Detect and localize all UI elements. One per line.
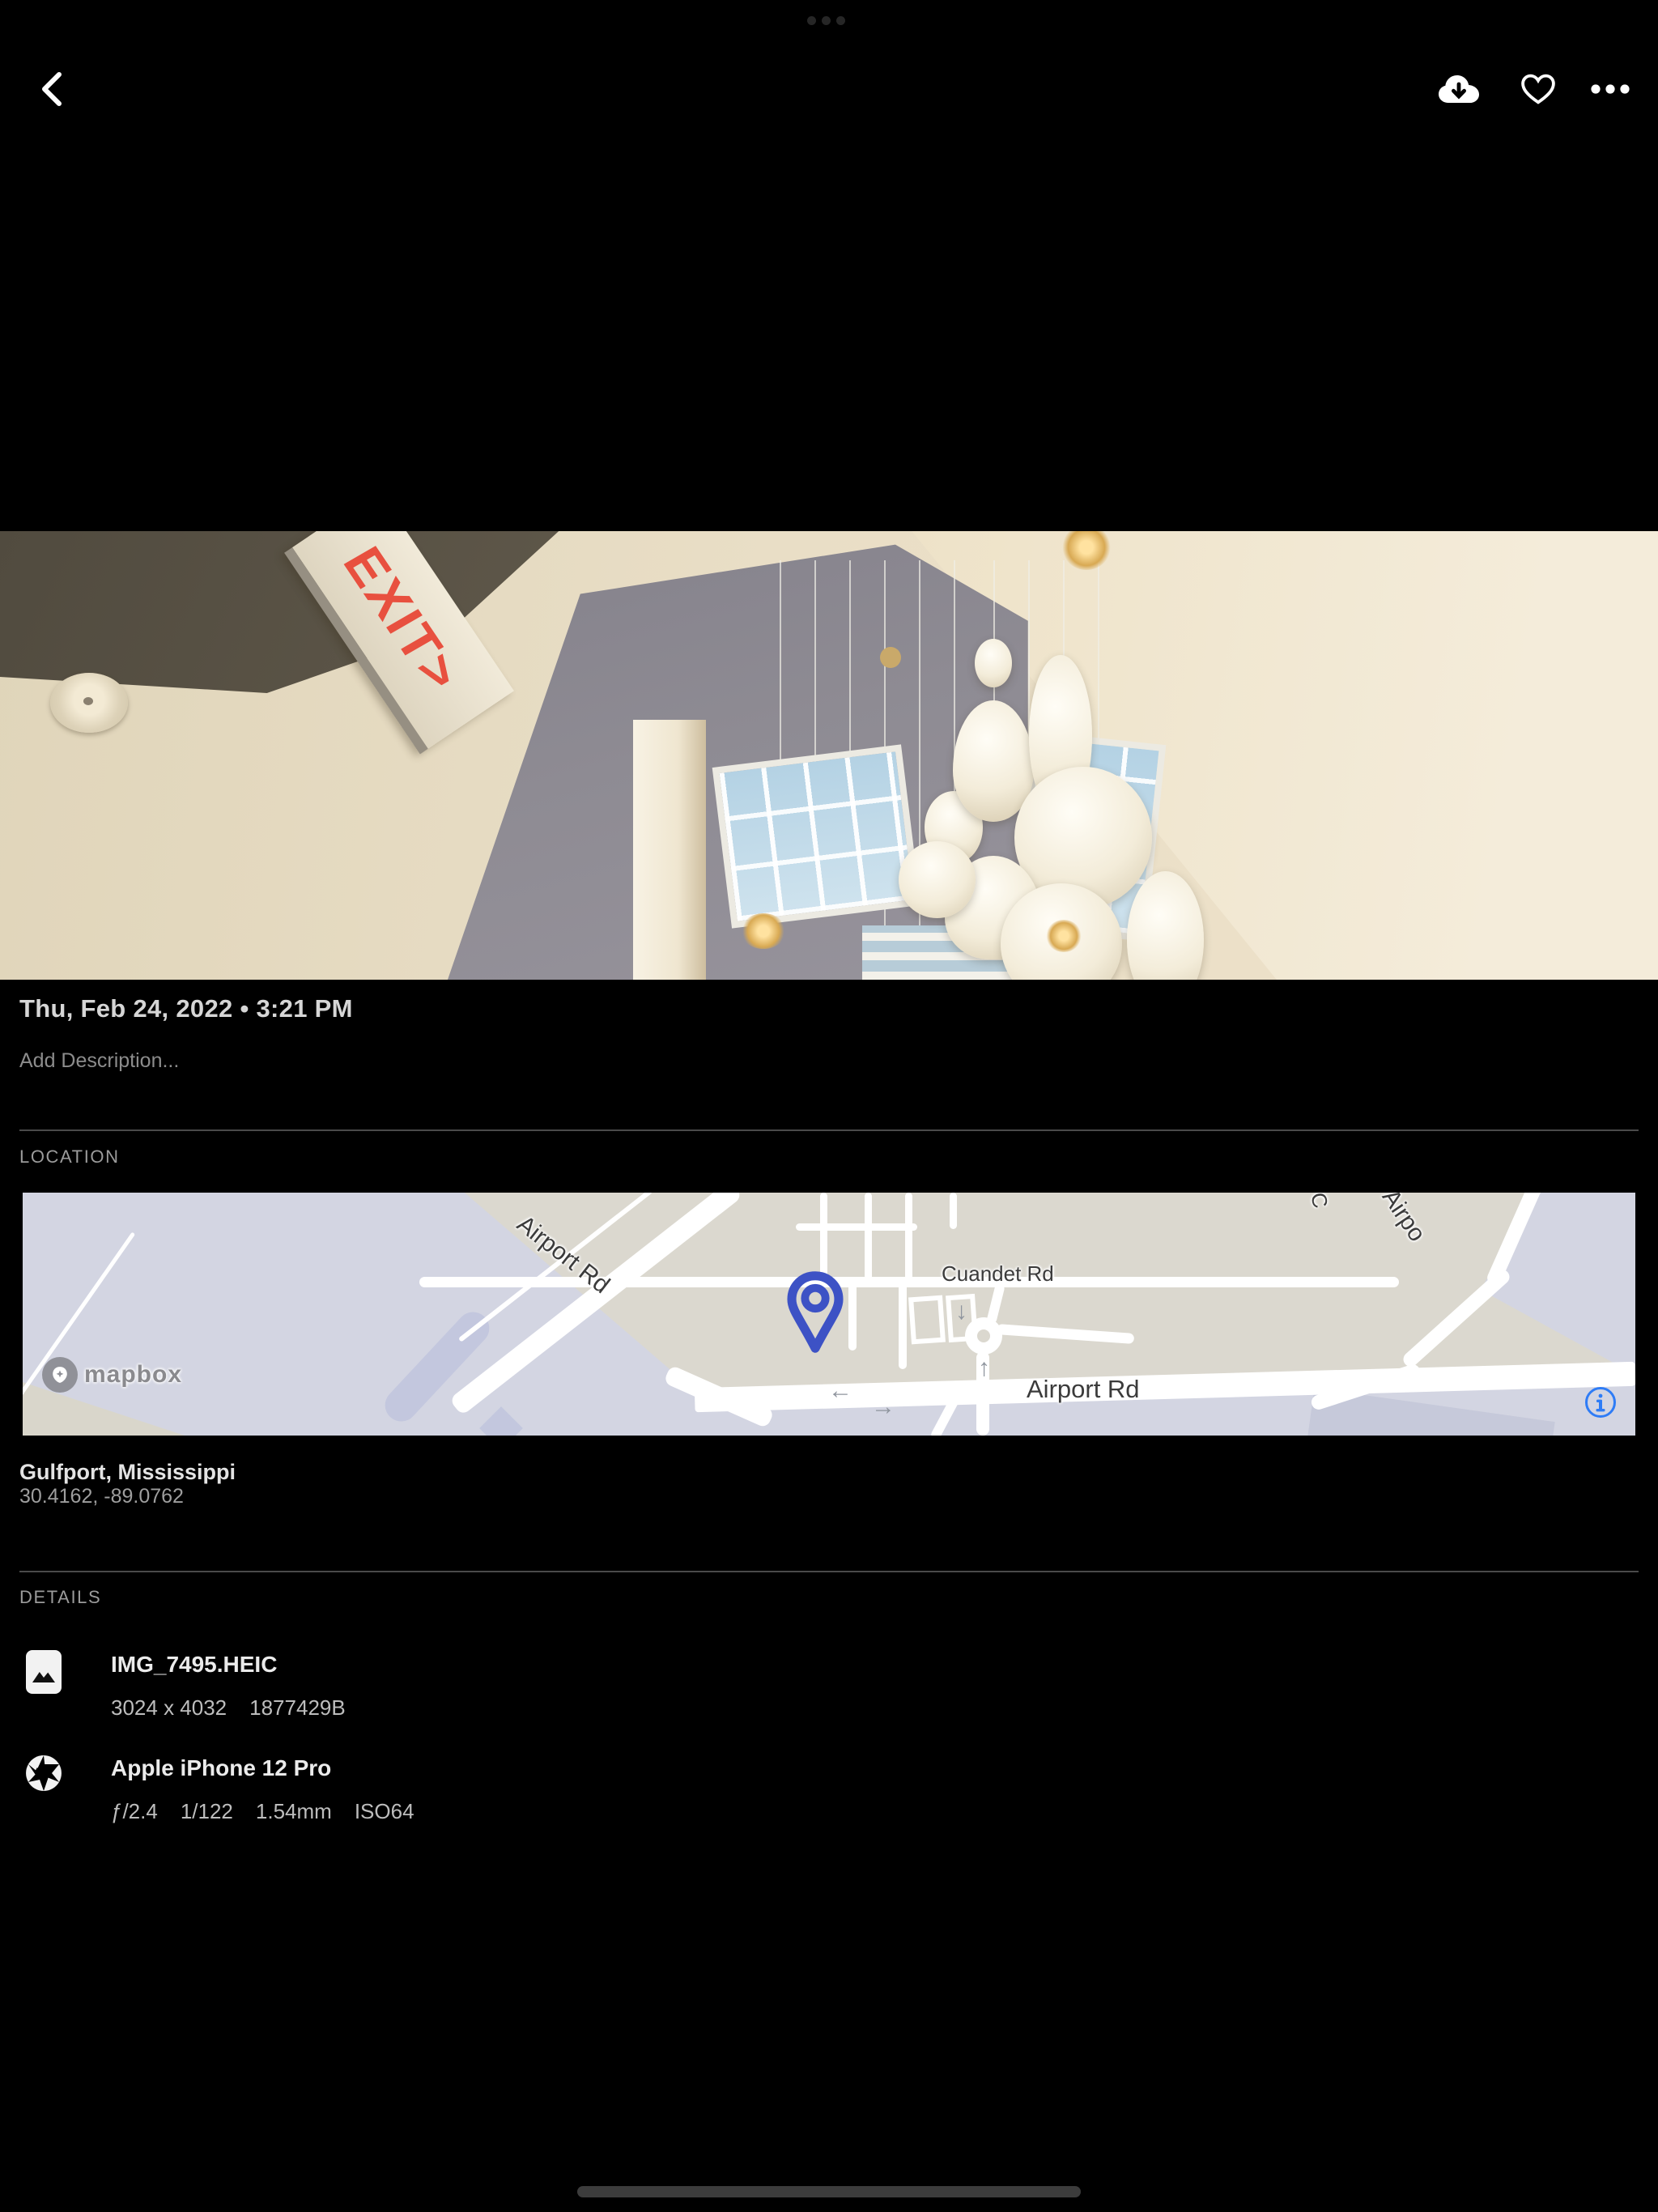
details-section-label: DETAILS (19, 1587, 101, 1608)
camera-meta: ƒ/2.41/1221.54mmISO64 (111, 1799, 437, 1824)
camera-name: Apple iPhone 12 Pro (111, 1755, 331, 1781)
exif-focal-length: 1.54mm (256, 1799, 332, 1823)
file-dimensions: 3024 x 4032 (111, 1695, 227, 1720)
home-indicator[interactable] (577, 2186, 1081, 2197)
smoke-detector (50, 673, 128, 733)
favorite-button[interactable] (1516, 66, 1561, 112)
image-file-icon (24, 1648, 63, 1699)
location-coordinates: 30.4162, -89.0762 (19, 1485, 184, 1508)
location-section-label: LOCATION (19, 1146, 120, 1168)
chevron-left-icon (38, 71, 66, 107)
photo-date: Thu, Feb 24, 2022 • 3:21 PM (19, 994, 353, 1023)
download-button[interactable] (1435, 66, 1483, 112)
ceiling-light (741, 913, 786, 949)
pendant-lamp (975, 639, 1012, 687)
road-minor (899, 1282, 907, 1369)
file-meta: 3024 x 40321877429B (111, 1695, 368, 1721)
photo-window-grid (712, 744, 921, 928)
road-curve-ne (1401, 1266, 1512, 1369)
exif-iso: ISO64 (355, 1799, 414, 1823)
dot (822, 16, 831, 25)
ellipsis-icon (1590, 84, 1630, 94)
cloud-download-icon (1437, 72, 1481, 106)
dot (836, 16, 845, 25)
divider (19, 1571, 1639, 1572)
top-toolbar (0, 57, 1658, 118)
file-name: IMG_7495.HEIC (111, 1652, 277, 1678)
location-place: Gulfport, Mississippi (19, 1460, 236, 1485)
road-label-airport-main: Airport Rd (1027, 1375, 1140, 1404)
oneway-arrow-right: → (871, 1393, 895, 1421)
ceiling-speaker (880, 647, 901, 668)
more-button[interactable] (1585, 74, 1635, 104)
map-parking-lot (908, 1295, 946, 1345)
road-minor (820, 1193, 827, 1282)
location-map[interactable]: ← → ↑ ↓ Airport Rd Cuandet Rd Airport Rd… (23, 1193, 1635, 1436)
road-minor (905, 1193, 912, 1282)
road-minor (796, 1223, 917, 1231)
divider (19, 1129, 1639, 1131)
aperture-icon (24, 1754, 63, 1797)
info-icon (1584, 1385, 1618, 1419)
mapbox-attribution[interactable]: mapbox (42, 1357, 182, 1393)
smoke-detector-center (83, 697, 93, 705)
dot (807, 16, 816, 25)
description-field[interactable]: Add Description... (19, 1049, 179, 1073)
oneway-arrow-left: ← (828, 1377, 852, 1405)
multitask-indicator (807, 16, 845, 25)
file-size: 1877429B (249, 1695, 346, 1720)
road-minor (997, 1324, 1134, 1344)
oneway-arrow-down: ↓ (955, 1298, 967, 1325)
road-label-cuandet: Cuandet Rd (942, 1261, 1054, 1287)
road-label-partial-c: C (1305, 1193, 1333, 1210)
exif-shutter: 1/122 (181, 1799, 233, 1823)
road-minor (848, 1282, 857, 1351)
road-minor (865, 1193, 872, 1282)
map-pin-icon (785, 1270, 845, 1357)
pendant-lamp (899, 841, 976, 918)
ceiling-light (1046, 920, 1082, 952)
exif-aperture: ƒ/2.4 (111, 1799, 158, 1823)
back-button[interactable] (31, 68, 73, 110)
mapbox-logo-icon (42, 1357, 78, 1393)
heart-icon (1520, 73, 1556, 105)
map-info-button[interactable] (1584, 1385, 1618, 1419)
oneway-arrow-up: ↑ (978, 1355, 990, 1382)
road-minor (950, 1193, 957, 1229)
photo[interactable]: EXIT> (0, 531, 1658, 980)
mapbox-wordmark: mapbox (84, 1361, 182, 1389)
road-roundabout-island (977, 1329, 990, 1342)
photo-column (633, 720, 706, 980)
road-label-partial-airport: Airpo (1376, 1193, 1431, 1247)
